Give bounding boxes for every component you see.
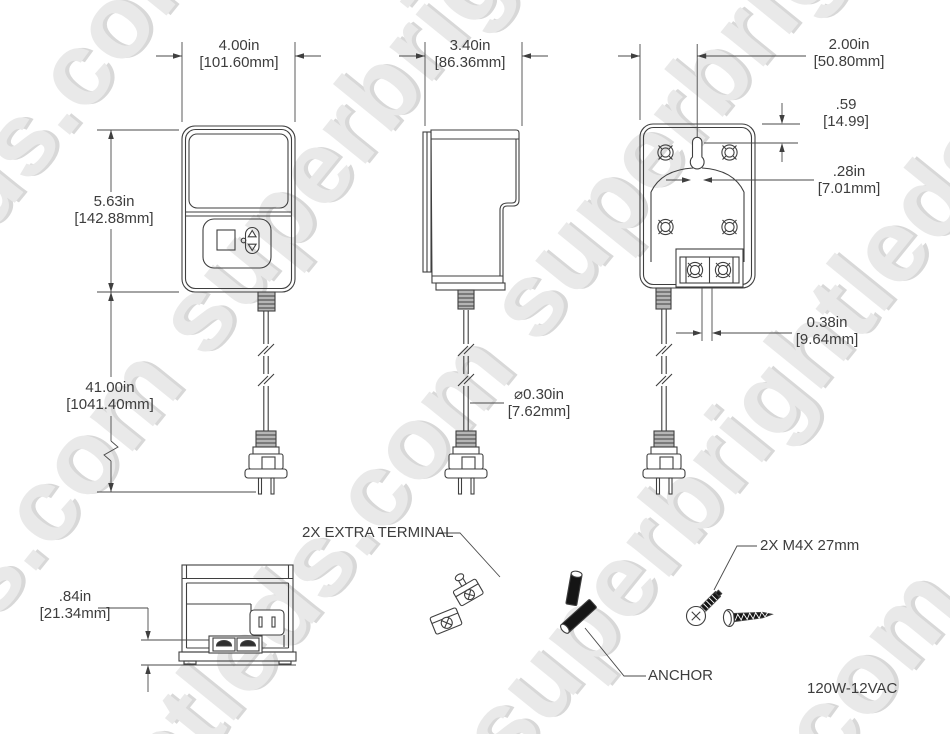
dimension-arrowheads — [108, 53, 785, 674]
label-anchor: ANCHOR — [648, 668, 713, 684]
dim-body-height: 5.63in [142.88mm] — [54, 193, 174, 227]
side-view — [423, 130, 519, 494]
part-extra-terminal-a — [447, 568, 484, 606]
power-plug-icon — [445, 431, 487, 494]
power-plug-icon — [245, 431, 287, 494]
dim-cord-length: 41.00in [1041.40mm] — [50, 379, 170, 413]
bottom-view — [179, 565, 296, 664]
dim-front-width: 4.00in [101.60mm] — [179, 37, 299, 71]
outlet-receptacle-icon — [246, 228, 260, 254]
part-extra-terminal-b — [430, 607, 463, 634]
part-tapping-screw — [723, 606, 773, 627]
screw-icon — [722, 219, 737, 234]
screw-icon — [658, 219, 673, 234]
dim-terminal-spacing: 0.38in [9.64mm] — [767, 314, 887, 348]
drawing-sheet: superbrightleds.com superbrightleds.com … — [0, 0, 950, 734]
screw-icon — [658, 145, 673, 160]
label-mounting-screws: 2X M4X 27mm — [760, 538, 859, 554]
keyhole-slot — [690, 137, 704, 169]
dim-cord-diameter: ⌀0.30in [7.62mm] — [479, 386, 599, 420]
label-extra-terminal: 2X EXTRA TERMINAL — [302, 525, 453, 541]
dim-keyhole-offset: .59 [14.99] — [786, 96, 906, 130]
dim-side-depth: 3.40in [86.36mm] — [410, 37, 530, 71]
part-anchor-b — [559, 599, 597, 635]
dim-keyhole-slot: .28in [7.01mm] — [789, 163, 909, 197]
power-plug-icon — [643, 431, 685, 494]
dim-base-height: .84in [21.34mm] — [15, 588, 135, 622]
part-anchor-a — [566, 570, 583, 605]
part-m4-screw — [683, 585, 727, 629]
terminal-block — [676, 249, 743, 287]
screw-icon — [722, 145, 737, 160]
back-view — [640, 124, 755, 494]
dim-back-width: 2.00in [50.80mm] — [789, 36, 909, 70]
part-number: 120W-12VAC — [807, 681, 897, 697]
outlet-protrusion — [250, 610, 284, 635]
bottom-terminals — [209, 636, 262, 653]
front-view — [182, 126, 295, 494]
